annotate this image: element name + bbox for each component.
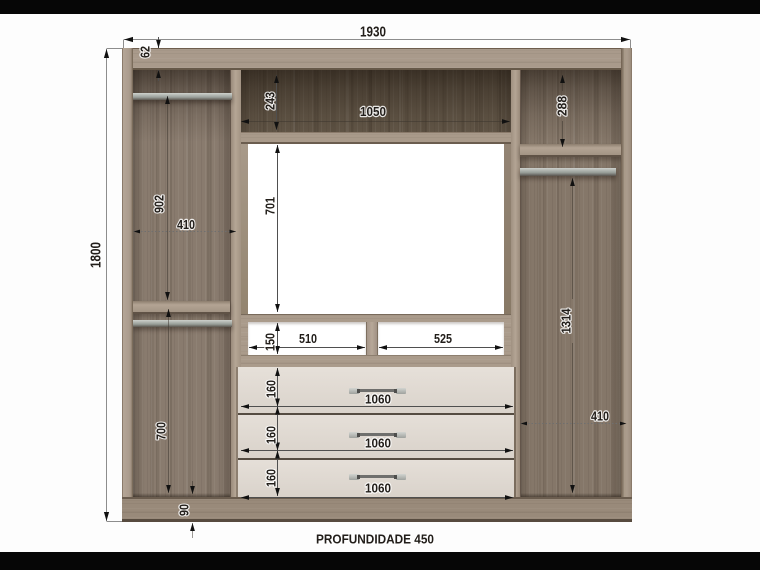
- svg-text:902: 902: [152, 195, 167, 213]
- svg-text:62: 62: [138, 46, 153, 58]
- svg-text:160: 160: [264, 469, 279, 487]
- svg-text:1060: 1060: [365, 436, 391, 451]
- svg-text:1314: 1314: [559, 308, 574, 334]
- svg-text:410: 410: [591, 409, 609, 424]
- svg-text:150: 150: [263, 333, 278, 351]
- svg-text:1050: 1050: [360, 104, 386, 119]
- svg-text:160: 160: [264, 426, 279, 444]
- svg-text:PROFUNDIDADE 450: PROFUNDIDADE 450: [316, 532, 434, 547]
- svg-text:410: 410: [177, 217, 195, 232]
- svg-text:1800: 1800: [89, 242, 105, 268]
- svg-text:700: 700: [154, 422, 169, 440]
- svg-text:510: 510: [299, 331, 317, 346]
- svg-text:1060: 1060: [365, 481, 391, 496]
- svg-text:525: 525: [434, 331, 452, 346]
- svg-text:160: 160: [264, 380, 279, 398]
- svg-text:243: 243: [263, 92, 278, 110]
- svg-text:90: 90: [177, 504, 192, 516]
- svg-text:288: 288: [555, 96, 570, 116]
- svg-text:701: 701: [263, 197, 278, 215]
- svg-text:1930: 1930: [360, 25, 386, 41]
- svg-text:1060: 1060: [365, 392, 391, 407]
